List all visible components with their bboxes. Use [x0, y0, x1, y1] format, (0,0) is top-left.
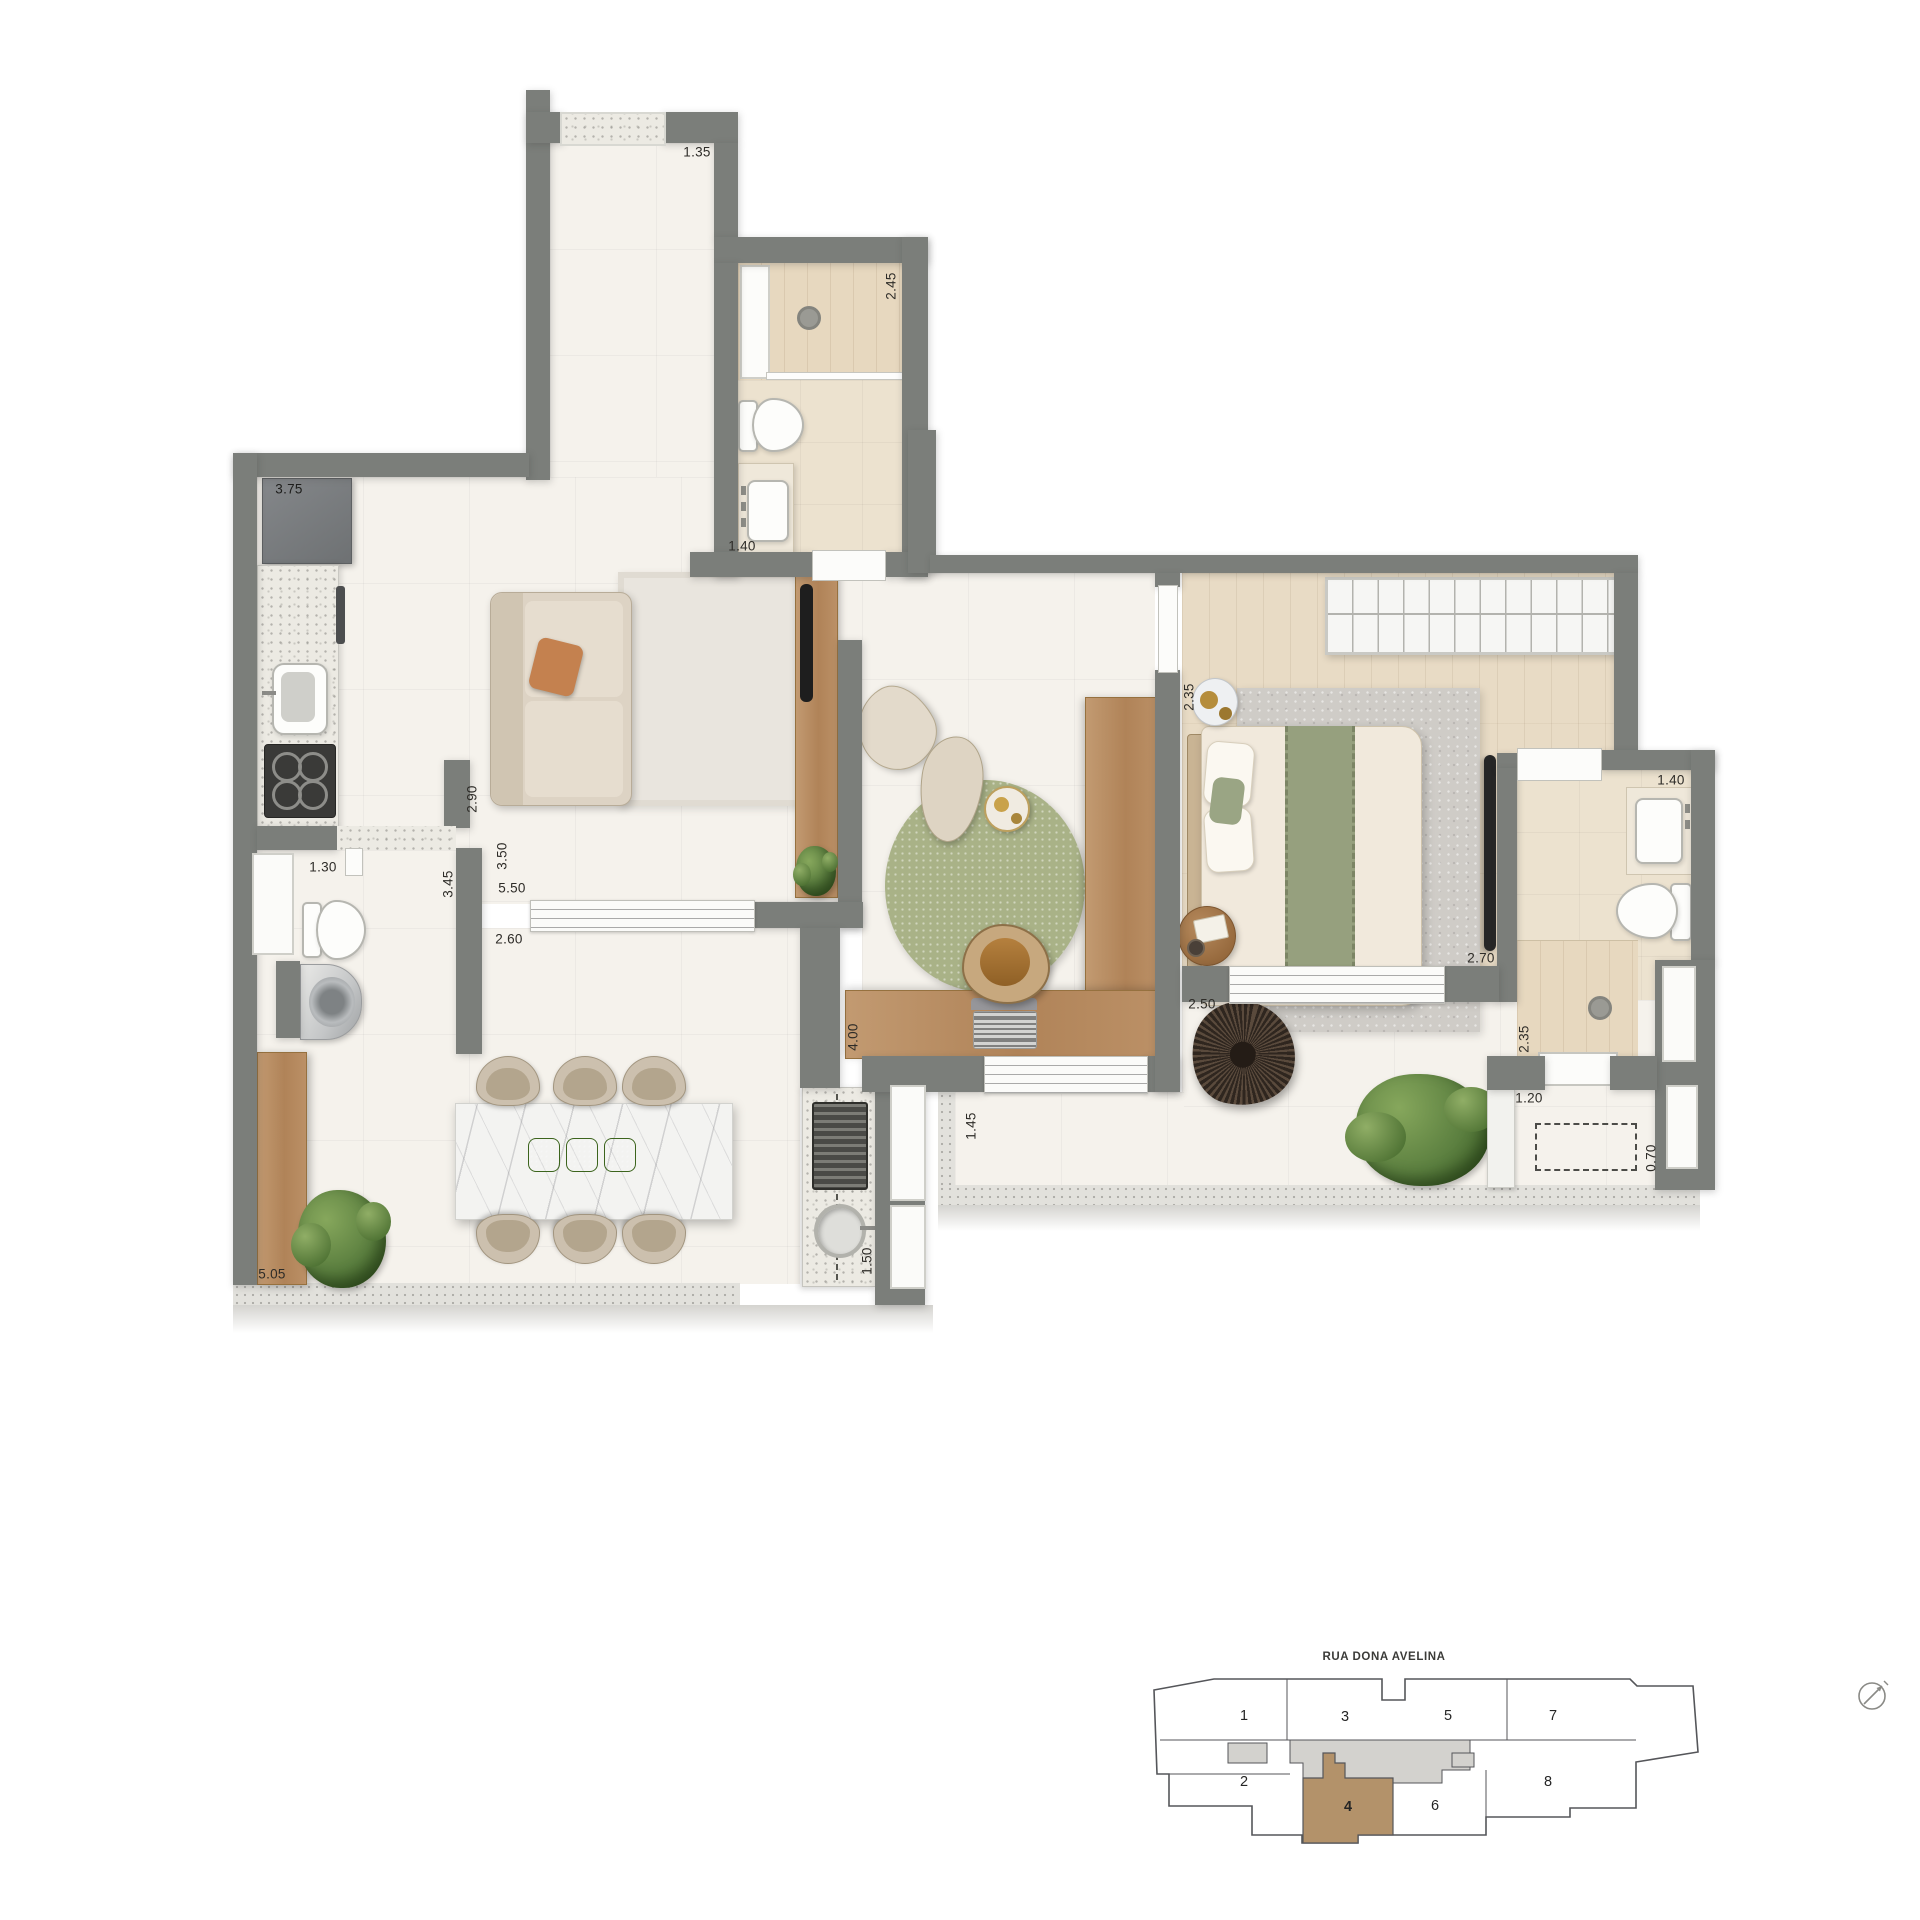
- wall: [753, 902, 863, 928]
- decor-icon: [1219, 707, 1232, 720]
- dim-label: 2.35: [1517, 1025, 1532, 1052]
- living-rug: [618, 572, 804, 806]
- dim-label: 2.35: [1182, 683, 1197, 710]
- office-entry-floor: [838, 573, 862, 640]
- wall: [233, 453, 529, 477]
- decor-icon: [994, 797, 1009, 812]
- dim-label: 2.45: [884, 272, 899, 299]
- wall: [800, 928, 840, 1088]
- oven-handle-icon: [336, 586, 345, 644]
- dim-label: 1.40: [1657, 773, 1684, 788]
- terrace-slab-edge: [233, 1283, 740, 1305]
- wall: [838, 640, 862, 928]
- keyplan-unit-4: 4: [1344, 1799, 1352, 1815]
- laundry-niche: [252, 853, 294, 955]
- bath2-shower-door: [1538, 1052, 1618, 1086]
- dim-label: 2.60: [495, 932, 522, 947]
- wall: [526, 112, 562, 143]
- terrace-slab-shadow: [233, 1305, 933, 1333]
- north-arrow-icon: [1852, 1674, 1894, 1716]
- bath1-sink: [747, 480, 789, 542]
- keyplan-unit-6: 6: [1431, 1798, 1439, 1814]
- dim-label: 2.70: [1467, 951, 1494, 966]
- wall: [714, 143, 738, 239]
- keyplan: [1140, 1640, 1740, 1870]
- decor-icon: [1200, 691, 1218, 709]
- bedside-table: [1192, 678, 1238, 726]
- balcony-slab-left: [938, 1092, 955, 1187]
- sofa-cushion: [525, 701, 623, 797]
- kitchen-threshold: [337, 826, 456, 850]
- kitchen-faucet-icon: [262, 691, 276, 695]
- papasan-center: [1227, 1039, 1259, 1071]
- street-name: RUA DONA AVELINA: [1322, 1651, 1445, 1663]
- gourmet-sink: [814, 1204, 866, 1258]
- wall: [276, 961, 300, 1038]
- balcony-slab-shadow: [938, 1205, 1700, 1231]
- dim-label: 1.20: [1515, 1091, 1542, 1106]
- keyplan-core-left: [1228, 1743, 1267, 1763]
- wall: [1614, 573, 1638, 755]
- laptop-keyboard: [973, 1011, 1037, 1049]
- wall: [930, 555, 1638, 573]
- dim-label: 1.35: [683, 145, 710, 160]
- toiletry-icons: [741, 502, 746, 511]
- toilet-bowl: [752, 398, 804, 452]
- keyplan-unit-2: 2: [1240, 1774, 1248, 1790]
- toiletry-icons: [1685, 804, 1690, 813]
- table-plant: [528, 1138, 560, 1172]
- keyplan-core-right: [1452, 1753, 1474, 1767]
- bedroom-door: [1158, 585, 1178, 673]
- wall: [714, 237, 928, 263]
- console-plant: [796, 846, 836, 896]
- shower-panel: [740, 265, 770, 379]
- shower-glass: [766, 372, 904, 380]
- gourmet-niche: [890, 1205, 926, 1289]
- wall: [690, 552, 812, 577]
- bath1-door: [812, 550, 886, 581]
- dim-label: 3.45: [441, 870, 456, 897]
- balcony-planter: [1487, 1088, 1515, 1188]
- balcony-floor-left: [955, 1092, 1184, 1186]
- keyplan-unit-3: 3: [1341, 1709, 1349, 1725]
- office-window: [984, 1056, 1148, 1094]
- bath2-vanity: [1626, 787, 1693, 875]
- toilet-bowl: [316, 900, 366, 960]
- wall: [1610, 1056, 1657, 1090]
- kitchen-sink-basin: [281, 672, 315, 722]
- shower-drain-icon: [797, 306, 821, 330]
- sofa-backrest: [491, 593, 523, 805]
- bed: [1187, 726, 1420, 1004]
- dim-label: 1.45: [964, 1112, 979, 1139]
- stove: [264, 744, 336, 818]
- keyplan-unit-8: 8: [1544, 1774, 1552, 1790]
- cup-icon: [1187, 939, 1205, 957]
- wall: [662, 112, 738, 143]
- bed-accent-pillow: [1208, 776, 1245, 826]
- toiletry-icons: [741, 518, 746, 527]
- toilet-bowl: [1616, 883, 1678, 939]
- wall: [908, 430, 936, 573]
- bath2-toilet: [1614, 881, 1692, 939]
- wall: [526, 90, 550, 480]
- keyplan-unit-5: 5: [1444, 1708, 1452, 1724]
- wall: [456, 848, 482, 1054]
- bedroom-window: [1229, 966, 1445, 1004]
- floor-plan: 1.35 2.45 1.40 3.75 2.90 1.30 3.45 3.50 …: [0, 0, 1920, 1920]
- ac-condenser-area: [1535, 1123, 1637, 1171]
- dim-label: 1.30: [309, 860, 336, 875]
- sofa: [490, 592, 632, 806]
- washer-door-icon: [309, 977, 355, 1027]
- shower-drain-icon: [1588, 996, 1612, 1020]
- bath2-door: [1517, 748, 1602, 781]
- nightstand: [1178, 906, 1236, 966]
- wall: [1155, 670, 1180, 1092]
- barbecue-grill: [812, 1102, 868, 1190]
- dim-label: 1.40: [728, 539, 755, 554]
- burner-icon: [298, 752, 328, 782]
- terrace-plant: [298, 1190, 386, 1288]
- table-plant: [604, 1138, 636, 1172]
- table-plant: [566, 1138, 598, 1172]
- dim-label: 5.50: [498, 881, 525, 896]
- gourmet-niche: [890, 1085, 926, 1201]
- balcony-slab-edge: [938, 1185, 1700, 1205]
- toiletry-icons: [1685, 820, 1690, 829]
- side-table: [984, 786, 1030, 832]
- entry-doormat: [560, 112, 666, 146]
- dim-label: 5.05: [258, 1267, 285, 1282]
- toiletry-icons: [741, 486, 746, 495]
- dim-label: 0.70: [1644, 1144, 1659, 1171]
- wall: [714, 263, 738, 577]
- wall: [1487, 1056, 1545, 1090]
- keyplan-unit-7: 7: [1549, 1708, 1557, 1724]
- living-window: [530, 900, 755, 932]
- office-chair-seat: [980, 938, 1030, 986]
- closet: [1325, 577, 1620, 655]
- bed-runner: [1285, 726, 1355, 1004]
- wall: [1443, 966, 1499, 1002]
- decor-icon: [1011, 813, 1022, 824]
- kitchen-sink: [272, 663, 328, 735]
- bedroom-tv-icon: [1484, 755, 1496, 951]
- dim-label: 3.75: [275, 482, 302, 497]
- wall: [1497, 768, 1517, 1002]
- dim-label: 3.50: [495, 842, 510, 869]
- bath1-toilet: [738, 398, 802, 450]
- lavabo-toilet: [302, 898, 360, 960]
- dim-label: 1.50: [860, 1247, 875, 1274]
- bath2-shower-floor: [1517, 940, 1638, 1061]
- balcony-plant: [1356, 1074, 1490, 1186]
- gourmet-faucet-icon: [860, 1226, 876, 1230]
- wall: [1691, 750, 1715, 962]
- wall: [257, 826, 337, 850]
- kitchen-door: [345, 848, 363, 876]
- bath2-niche: [1666, 1085, 1698, 1169]
- bath2-niche: [1662, 966, 1696, 1062]
- dim-label: 2.90: [465, 785, 480, 812]
- keyplan-unit-1: 1: [1240, 1708, 1248, 1724]
- burner-icon: [298, 780, 328, 810]
- tv-icon: [800, 584, 813, 702]
- bath2-sink: [1635, 798, 1683, 864]
- dim-label: 2.50: [1188, 997, 1215, 1012]
- entry-corridor-floor: [550, 143, 714, 479]
- dim-label: 4.00: [846, 1023, 861, 1050]
